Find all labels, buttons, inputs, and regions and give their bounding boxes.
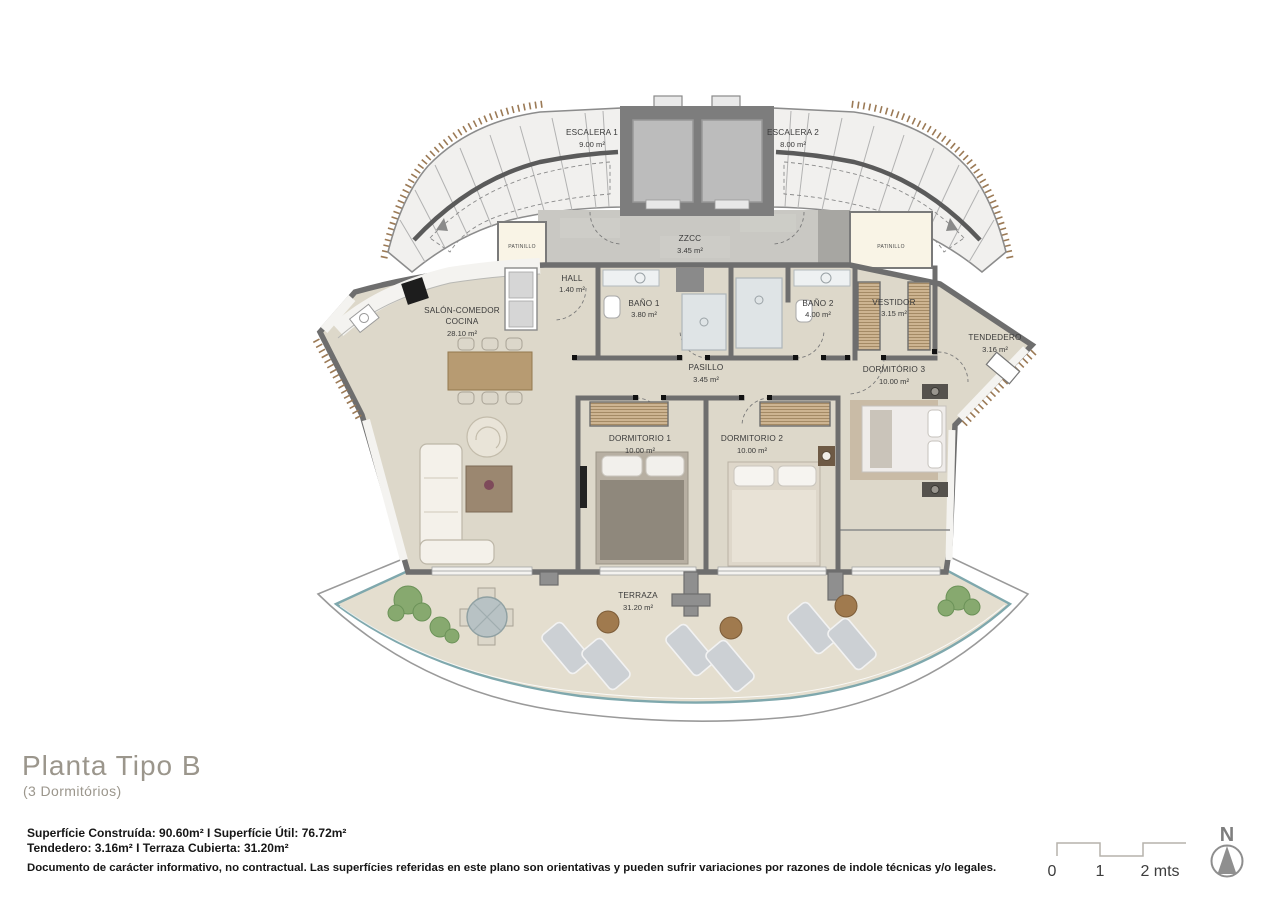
plan-title: Planta Tipo B bbox=[22, 750, 202, 782]
dorm2-area: 10.00 m² bbox=[737, 446, 767, 455]
bano2-area: 4.00 m² bbox=[805, 310, 831, 319]
dorm2-label: DORMITORIO 2 bbox=[721, 434, 784, 443]
shaft-wall bbox=[818, 210, 850, 268]
escalera2-area: 8.00 m² bbox=[780, 140, 806, 149]
salon-area: 28.10 m² bbox=[447, 329, 477, 338]
toilet-1 bbox=[604, 296, 620, 318]
wardrobe-dorm2 bbox=[760, 402, 830, 426]
disclaimer-text: Documento de carácter informativo, no co… bbox=[27, 862, 996, 874]
bano1-label: BAÑO 1 bbox=[628, 298, 659, 308]
zzcc-label: ZZCC bbox=[679, 234, 702, 243]
dorm1-area: 10.00 m² bbox=[625, 446, 655, 455]
elevator-shaft-1 bbox=[633, 120, 693, 202]
escalera1-label: ESCALERA 1 bbox=[566, 128, 618, 137]
coffee-table bbox=[466, 466, 512, 512]
salon-label-2: COCINA bbox=[445, 317, 478, 326]
hall-area: 1.40 m² bbox=[559, 285, 585, 294]
elevator-core bbox=[620, 96, 774, 216]
north-label: N bbox=[1220, 824, 1234, 846]
shower-2 bbox=[736, 278, 782, 348]
hall-label: HALL bbox=[561, 274, 583, 283]
plumbing-shaft bbox=[676, 268, 704, 292]
plan-subtitle: (3 Dormitórios) bbox=[23, 783, 122, 799]
zzcc-area: 3.45 m² bbox=[677, 246, 703, 255]
scale-tick-2: 2 mts bbox=[1140, 863, 1179, 880]
armchair bbox=[467, 417, 507, 457]
dining-set bbox=[448, 338, 532, 404]
surface-line-1: Superfície Construída: 90.60m² I Superfí… bbox=[27, 826, 346, 840]
vestidor-label: VESTIDOR bbox=[872, 298, 915, 307]
tendedero-area: 3.16 m² bbox=[982, 345, 1008, 354]
side-table-2 bbox=[720, 617, 742, 639]
vestidor-area: 3.15 m² bbox=[881, 309, 907, 318]
bano2-label: BAÑO 2 bbox=[802, 298, 833, 308]
tendedero-label: TENDEDERO bbox=[968, 333, 1021, 342]
north-arrow-icon bbox=[1218, 846, 1237, 874]
side-table-1 bbox=[597, 611, 619, 633]
dorm3-label: DORMITÓRIO 3 bbox=[863, 364, 926, 374]
patinillo-left-label: PATINILLO bbox=[508, 244, 536, 250]
dorm1-label: DORMITORIO 1 bbox=[609, 434, 672, 443]
surface-line-2: Tendedero: 3.16m² I Terraza Cubierta: 31… bbox=[27, 841, 289, 855]
scale-bar: 0 1 2 mts bbox=[1048, 843, 1186, 880]
scale-tick-0: 0 bbox=[1048, 863, 1057, 880]
pasillo-label: PASILLO bbox=[689, 363, 724, 372]
north-compass: N bbox=[1212, 824, 1243, 877]
terraza-label: TERRAZA bbox=[618, 591, 658, 600]
dorm3-area: 10.00 m² bbox=[879, 377, 909, 386]
pasillo-area: 3.45 m² bbox=[693, 375, 719, 384]
window-dorm3-side bbox=[949, 430, 952, 560]
floor-plan-page: ESCALERA 1 9.00 m² ESCALERA 2 8.00 m² ZZ… bbox=[0, 0, 1280, 905]
side-table-3 bbox=[835, 595, 857, 617]
tv-panel bbox=[580, 466, 587, 508]
patinillo-right bbox=[850, 212, 932, 268]
patinillo-right-label: PATINILLO bbox=[877, 244, 905, 250]
shower-1 bbox=[682, 294, 726, 350]
terraza-area: 31.20 m² bbox=[623, 603, 653, 612]
escalera1-area: 9.00 m² bbox=[579, 140, 605, 149]
dining-table bbox=[448, 352, 532, 390]
scale-tick-1: 1 bbox=[1096, 863, 1105, 880]
escalera2-label: ESCALERA 2 bbox=[767, 128, 819, 137]
salon-label-1: SALÓN-COMEDOR bbox=[424, 305, 500, 315]
wardrobe-dorm1 bbox=[590, 402, 668, 426]
scale-bar-line bbox=[1057, 843, 1186, 856]
elevator-shaft-2 bbox=[702, 120, 762, 202]
bano1-area: 3.80 m² bbox=[631, 310, 657, 319]
